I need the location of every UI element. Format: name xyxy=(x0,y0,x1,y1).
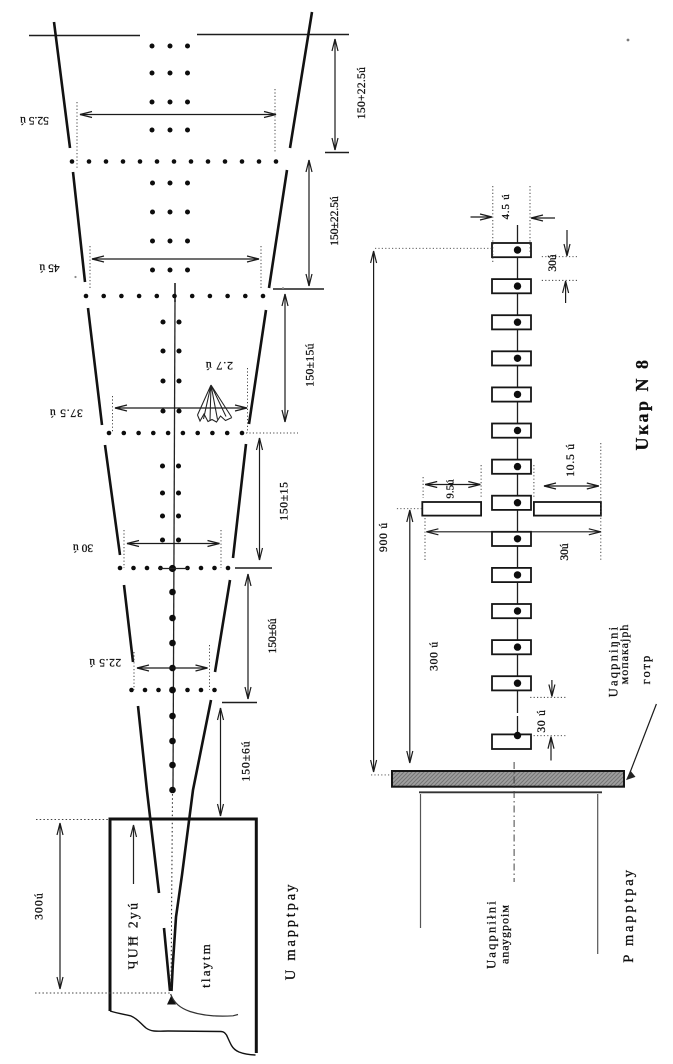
svg-text:аnауgpоiм: аnауgpоiм xyxy=(498,904,512,964)
svg-text:150±15ú: 150±15ú xyxy=(305,343,317,387)
svg-text:150+22.5ú: 150+22.5ú xyxy=(356,67,368,119)
svg-text:P mаpptpау: P mаpptpау xyxy=(621,867,637,963)
svg-text:30ú: 30ú xyxy=(559,543,571,561)
svg-text:22.5 ú: 22.5 ú xyxy=(89,656,121,668)
svg-text:U mаpptpау: U mаpptpау xyxy=(283,882,299,981)
svg-text:900 ú: 900 ú xyxy=(378,522,390,552)
svg-text:150±15: 150±15 xyxy=(279,481,291,520)
svg-text:Uкар N 8: Uкар N 8 xyxy=(632,357,652,450)
svg-text:52.5 ú: 52.5 ú xyxy=(20,114,49,126)
svg-text:готp: готp xyxy=(639,654,653,685)
svg-text:45 ú: 45 ú xyxy=(39,262,59,274)
svg-text:9.5ú: 9.5ú xyxy=(445,479,457,499)
svg-text:Uаqрniłni: Uаqрniłni xyxy=(485,899,499,969)
svg-text:10.5 ú: 10.5 ú xyxy=(565,443,577,477)
svg-text:300 ú: 300 ú xyxy=(429,641,441,671)
svg-text:мопакаjрh: мопакаjрh xyxy=(617,624,631,685)
svg-text:150±6ú: 150±6ú xyxy=(267,618,279,653)
svg-text:30 ú: 30 ú xyxy=(536,709,548,732)
svg-text:150±6ú: 150±6ú xyxy=(241,740,253,781)
svg-text:2.7 ú: 2.7 ú xyxy=(205,359,233,373)
svg-text:30 ú: 30 ú xyxy=(73,542,93,554)
svg-text:30ú: 30ú xyxy=(547,254,559,272)
svg-text:tlауtm: tlауtm xyxy=(198,942,213,988)
svg-text:150±22.5ú: 150±22.5ú xyxy=(329,196,341,246)
svg-text:ЧUĦ 2уú: ЧUĦ 2уú xyxy=(126,901,141,970)
svg-text:300ú: 300ú xyxy=(34,892,46,920)
svg-text:37.5 ú: 37.5 ú xyxy=(49,407,83,419)
svg-text:4.5 ú: 4.5 ú xyxy=(500,194,512,220)
